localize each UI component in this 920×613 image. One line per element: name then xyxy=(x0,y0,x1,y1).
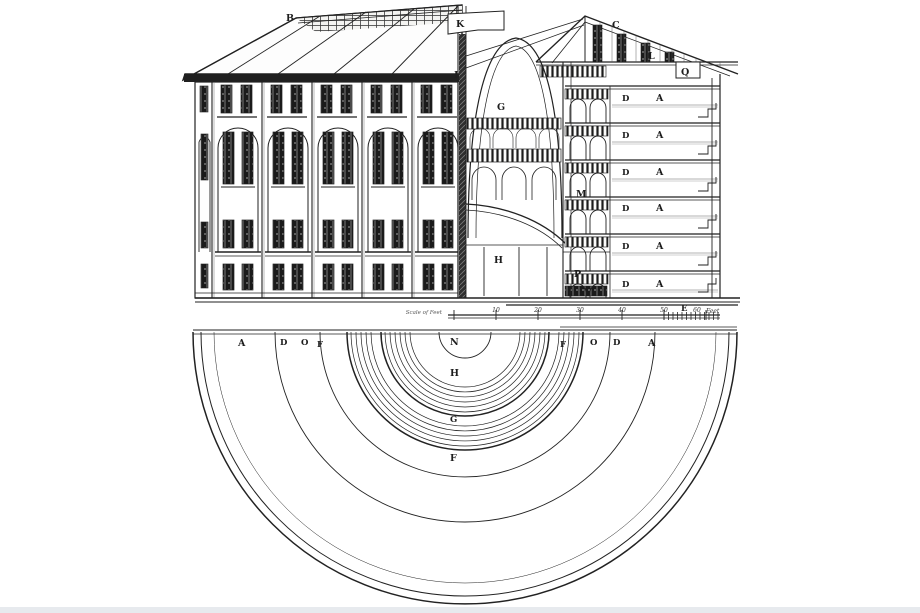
scale-tick-label: 60 xyxy=(693,307,701,314)
label-lodge-p: P xyxy=(574,269,582,280)
floor-cell-label: A xyxy=(655,167,664,178)
floor-cell-label: A xyxy=(655,130,664,141)
ground-and-scale-bar: 102030405060 xyxy=(195,298,740,320)
scale-tick-label: 10 xyxy=(492,307,500,314)
label-roof-b: B xyxy=(286,13,294,24)
label-ground-e: E xyxy=(681,304,688,314)
floor-plan xyxy=(193,327,737,604)
floor-cell-label: A xyxy=(655,203,664,214)
scale-unit: Feet xyxy=(705,308,720,315)
screenshot-root: 102030405060 B K C I L Q G M H P E D A D… xyxy=(0,0,920,613)
panopticon-engraving: 102030405060 B K C I L Q G M H P E D A D… xyxy=(0,0,920,613)
plan-toprow-right-d: D xyxy=(613,338,621,348)
plan-toprow-left-f: F xyxy=(317,340,323,350)
section-drawing xyxy=(448,6,738,298)
plan-corridor-f: F xyxy=(450,453,457,464)
drawing-linework: 102030405060 xyxy=(0,5,920,613)
label-gallery-m: M xyxy=(576,189,587,200)
floor-door-label: D xyxy=(622,280,630,290)
elevation-facade xyxy=(195,82,461,298)
plan-toprow-left-o: O xyxy=(301,338,309,348)
label-attic-l: L xyxy=(648,51,655,62)
plan-toprow-left-a: A xyxy=(237,338,246,349)
floor-door-label: D xyxy=(622,131,630,141)
plan-gallery-g: G xyxy=(450,415,457,425)
label-roof-c: C xyxy=(612,20,620,31)
floor-door-label: D xyxy=(622,94,630,104)
scale-tick-label: 50 xyxy=(660,307,668,314)
plan-toprow-right-o: O xyxy=(590,338,598,348)
plan-center-n: N xyxy=(450,337,459,348)
plan-toprow-right-f: F xyxy=(560,340,566,350)
floor-door-label: D xyxy=(622,168,630,178)
scale-tick-label: 30 xyxy=(576,307,584,314)
label-well-g: G xyxy=(497,102,506,113)
scale-note: Scale of Feet xyxy=(406,310,443,316)
label-eaves-i: I xyxy=(454,70,459,81)
floor-cell-label: A xyxy=(655,93,664,104)
elevation-roof xyxy=(183,5,462,82)
label-chapel-h: H xyxy=(494,255,503,266)
floor-cell-label: A xyxy=(655,241,664,252)
floor-door-label: D xyxy=(622,242,630,252)
label-skylight-k: K xyxy=(456,19,465,30)
floor-door-label: D xyxy=(622,204,630,214)
scale-tick-label: 20 xyxy=(533,307,542,314)
plan-chapel-h: H xyxy=(450,368,459,379)
plan-toprow-right-a: A xyxy=(647,338,656,349)
label-stair-q: Q xyxy=(681,67,690,78)
plan-toprow-left-d: D xyxy=(280,338,288,348)
scale-tick-label: 40 xyxy=(617,307,626,314)
floor-cell-label: A xyxy=(655,279,664,290)
